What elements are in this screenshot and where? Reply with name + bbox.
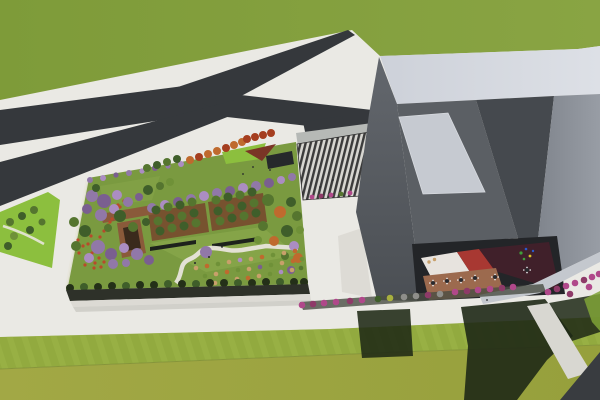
render-canvas: Aerial 3D architectural rendering: forke… xyxy=(0,0,600,400)
main-building xyxy=(338,46,600,304)
architectural-render: Aerial 3D architectural rendering: forke… xyxy=(0,0,600,400)
